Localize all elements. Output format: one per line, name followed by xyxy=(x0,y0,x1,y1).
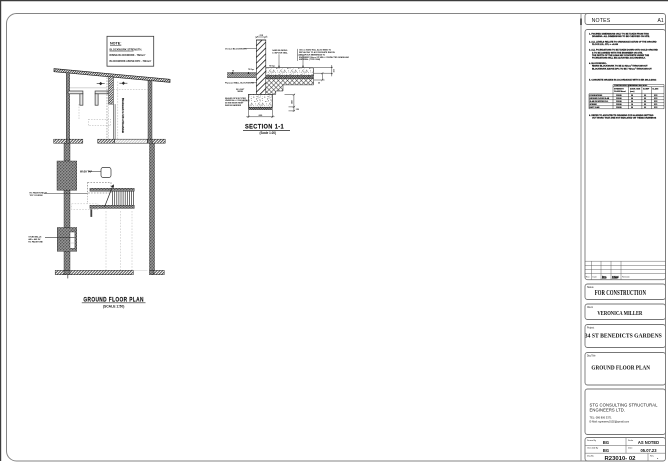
svg-text:20: 20 xyxy=(631,95,633,97)
svg-text:TOP COURSE: TOP COURSE xyxy=(30,195,44,197)
svg-text:MATERIAL (TYPE 3084): MATERIAL (TYPE 3084) xyxy=(299,58,320,61)
svg-text:C25/30: C25/30 xyxy=(616,101,622,103)
svg-text:25: 25 xyxy=(318,82,320,84)
svg-text:FOUNDATIONS: FOUNDATIONS xyxy=(590,94,604,97)
svg-text:Project: Project xyxy=(587,327,595,330)
svg-text:WASH TAP: WASH TAP xyxy=(80,170,92,173)
svg-text:C20/25: C20/25 xyxy=(616,95,622,97)
svg-text:6. REFER TO ARCHITECTS DRAWING: 6. REFER TO ARCHITECTS DRAWING FOR ALIGN… xyxy=(589,114,654,117)
svg-text:BG: BG xyxy=(603,448,609,453)
svg-text:XC2: XC2 xyxy=(654,107,657,109)
svg-text:GROUND FLOOR SLAB: GROUND FLOOR SLAB xyxy=(590,97,610,100)
svg-text:Drg No.: Drg No. xyxy=(587,455,595,458)
svg-text:Chkd: Chkd xyxy=(612,275,619,279)
svg-text:ENGINEERS LTD.: ENGINEERS LTD. xyxy=(590,407,626,412)
svg-text:NOTE:: NOTE: xyxy=(110,41,121,45)
svg-text:S3: S3 xyxy=(644,107,646,109)
svg-text:34 ST BENEDICTS GARDENS: 34 ST BENEDICTS GARDENS xyxy=(585,333,662,340)
svg-text:Rev.: Rev. xyxy=(586,277,590,279)
svg-text:SLAB ON UPPER FLR.: SLAB ON UPPER FLR. xyxy=(590,100,609,103)
svg-text:4. BLOCKWORK:: 4. BLOCKWORK: xyxy=(589,62,607,65)
svg-text:FLOOR LVL. FFL = +0.000: FLOOR LVL. FFL = +0.000 xyxy=(592,44,619,46)
svg-text:BLOCKWORK ABOVE DPC TO BE 7 N/: BLOCKWORK ABOVE DPC TO BE 7 N/mm² THROUG… xyxy=(592,67,652,70)
svg-text:RC PADSTONE: RC PADSTONE xyxy=(28,240,43,243)
svg-text:Plywood WALL BLOCKWORK: Plywood WALL BLOCKWORK xyxy=(225,82,255,85)
svg-text:S3: S3 xyxy=(644,98,646,100)
svg-text:S3: S3 xyxy=(644,104,646,106)
svg-text:GROUND FLOOR PLAN: GROUND FLOOR PLAN xyxy=(83,296,144,303)
svg-text:C25/30: C25/30 xyxy=(616,104,622,106)
svg-text:1. FIGURED DIMENSIONS ONLY TO: 1. FIGURED DIMENSIONS ONLY TO BE TAKEN F… xyxy=(589,32,649,35)
svg-text:(Scale 1:20): (Scale 1:20) xyxy=(260,131,277,135)
svg-text:(SCALE 1:50): (SCALE 1:50) xyxy=(103,304,125,308)
svg-text:Blockwork to U/S of Roofslab: Blockwork to U/S of Roofslab xyxy=(121,98,124,133)
svg-text:BG: BG xyxy=(603,440,609,445)
svg-text:FOR CONSTRUCTION: FOR CONSTRUCTION xyxy=(595,290,646,297)
svg-text:NOTES: NOTES xyxy=(592,18,611,24)
svg-text:75: 75 xyxy=(232,70,234,72)
svg-text:R23010- 02: R23010- 02 xyxy=(605,456,636,462)
svg-text:S3: S3 xyxy=(644,95,646,97)
svg-text:RADON BARRIER: RADON BARRIER xyxy=(225,104,242,107)
svg-text:& VAPOUR SEAL: & VAPOUR SEAL xyxy=(272,52,288,55)
svg-text:TEL: 086 806 3371: TEL: 086 806 3371 xyxy=(590,416,613,420)
svg-text:SECTION 1-1: SECTION 1-1 xyxy=(245,124,284,131)
svg-text:XC2: XC2 xyxy=(654,95,657,97)
svg-text:75 Dpc: 75 Dpc xyxy=(248,69,254,71)
svg-text:Drn: Drn xyxy=(602,275,607,279)
svg-text:20: 20 xyxy=(631,98,633,100)
svg-text:Rev.: Rev. xyxy=(650,456,655,458)
svg-text:20: 20 xyxy=(631,101,633,103)
svg-text:XC2: XC2 xyxy=(654,98,657,100)
svg-text:150: 150 xyxy=(296,109,299,111)
svg-text:AS NOTED: AS NOTED xyxy=(638,440,659,445)
svg-text:10: 10 xyxy=(631,104,633,106)
svg-text:3. ALL FOUNDATIONS TO BE TAKEN: 3. ALL FOUNDATIONS TO BE TAKEN DOWN ONTO… xyxy=(589,49,658,52)
svg-text:DRAWING. ALL DIMENSIONS TO BE: DRAWING. ALL DIMENSIONS TO BE CHECKED ON… xyxy=(592,35,650,38)
svg-text:RISING BLOCKWORK - 7N/mm²: RISING BLOCKWORK - 7N/mm² xyxy=(110,53,146,57)
svg-text:NOMINAL MAX AGG.: NOMINAL MAX AGG. xyxy=(630,84,648,87)
svg-text:XC2: XC2 xyxy=(654,101,657,103)
svg-text:BLOCKWORK STRENGTH.: BLOCKWORK STRENGTH. xyxy=(110,47,143,51)
svg-text:MESH: MESH xyxy=(238,91,244,93)
svg-text:XC1: XC1 xyxy=(654,104,657,106)
svg-text:FOUNDATIONS WILL BE ADJUSTED A: FOUNDATIONS WILL BE ADJUSTED ACCORDINGLY… xyxy=(592,57,646,60)
svg-text:SCREED: SCREED xyxy=(590,104,598,106)
svg-text:RISING BLOCKWORK TO BE 13 N/mm: RISING BLOCKWORK TO BE 13 N/mm² THROUGHO… xyxy=(592,65,648,68)
svg-text:Drg Title: Drg Title xyxy=(587,355,596,358)
svg-text:75 Dpc: 75 Dpc xyxy=(269,65,275,67)
svg-text:CLASS N/mm²: CLASS N/mm² xyxy=(614,90,626,93)
svg-text:GROUND FLOOR PLAN: GROUND FLOOR PLAN xyxy=(591,364,650,371)
svg-text:OUT WORK THAT ARE NOT INDICATE: OUT WORK THAT ARE NOT INDICATED ON THESE… xyxy=(592,117,657,120)
svg-text:BLOCKWORK ABOVE DPC - 7N/mm²: BLOCKWORK ABOVE DPC - 7N/mm² xyxy=(110,59,152,63)
svg-text:Scale: Scale xyxy=(628,440,634,442)
svg-text:CLASS: CLASS xyxy=(652,87,659,90)
svg-text:(mm): (mm) xyxy=(630,91,635,93)
svg-text:SLUMP: SLUMP xyxy=(643,88,650,90)
svg-text:A1: A1 xyxy=(658,18,664,24)
svg-text:S3: S3 xyxy=(644,101,646,103)
svg-text:& TO BE AGREED WITH THE ENGINE: & TO BE AGREED WITH THE ENGINEER ON SITE… xyxy=(592,51,643,54)
svg-text:05.07.23: 05.07.23 xyxy=(641,448,658,453)
svg-text:THE DEPTH OF THE LEAN MIX CONC: THE DEPTH OF THE LEAN MIX CONCRETE UNDER… xyxy=(592,54,650,57)
svg-text:20: 20 xyxy=(631,107,633,109)
svg-text:Client: Client xyxy=(587,306,593,309)
svg-text:VERONICA MILLER: VERONICA MILLER xyxy=(597,310,642,317)
svg-text:5. CONCRETE GRADES IN ACCORDAN: 5. CONCRETE GRADES IN ACCORDANCE WITH IS… xyxy=(589,79,657,82)
svg-text:AGGR. SIZE: AGGR. SIZE xyxy=(630,87,641,90)
svg-text:Drawn By: Drawn By xyxy=(587,439,597,442)
svg-text:Checked By: Checked By xyxy=(587,448,599,450)
svg-text:2. ALL LEVELS RELATE TO ORDNAN: 2. ALL LEVELS RELATE TO ORDNANCE DATUM O… xyxy=(589,40,657,43)
svg-text:C25/30: C25/30 xyxy=(616,98,622,100)
svg-text:Revision: Revision xyxy=(622,277,630,279)
svg-text:Status: Status xyxy=(587,286,594,289)
svg-text:E-Mail: sgreaney0102@gmail.com: E-Mail: sgreaney0102@gmail.com xyxy=(590,419,630,423)
svg-text:C28/35: C28/35 xyxy=(616,107,622,109)
svg-text:STRENGTH: STRENGTH xyxy=(614,88,624,90)
svg-text:RAFT SLAB: RAFT SLAB xyxy=(590,106,601,109)
svg-text:Vertical BLOCKWORK: Vertical BLOCKWORK xyxy=(225,47,247,50)
